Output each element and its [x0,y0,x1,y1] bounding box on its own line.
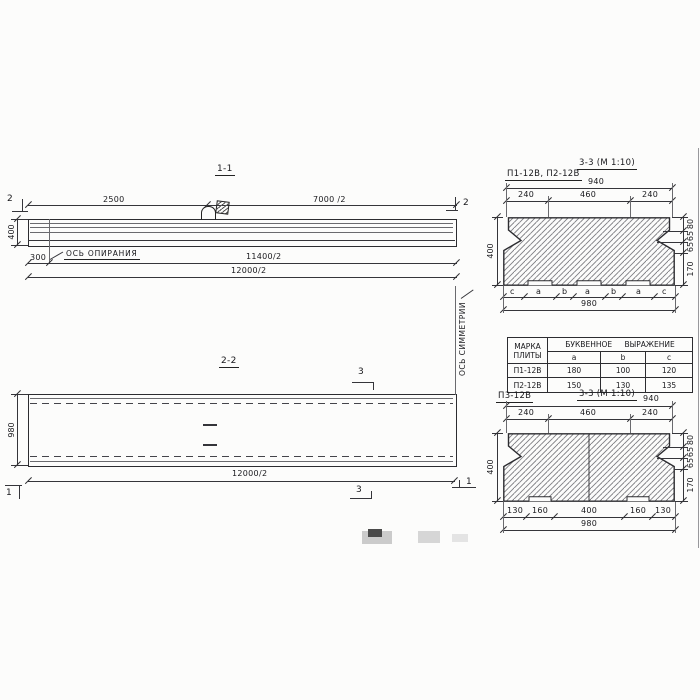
cross-bottom-label: П3-12В [496,392,533,403]
dim-line [503,297,675,298]
table-col-b: b [601,352,646,364]
dim-940: 940 [588,177,604,186]
plan-edge-line [30,398,453,399]
marks-table: МАРКА ПЛИТЫ БУКВЕННОЕ ВЫРАЖЕНИЕ a b c П1… [507,337,693,393]
sheet-frame-line [698,148,699,548]
dim-line [506,419,673,420]
section-marker-1-left: 1 [6,489,12,498]
cross-top-title: 3-3 (М 1:10) [577,159,637,170]
marker-line [459,480,460,487]
ext-line [548,196,549,217]
dim-460: 460 [580,408,596,417]
table-header-mark-line1: МАРКА [514,342,541,351]
ext-line [503,286,504,313]
center-mark [203,424,217,426]
table-header-expression: БУКВЕННОЕ ВЫРАЖЕНИЕ [548,338,692,352]
beam-layer-line [30,223,453,224]
leader-line [461,289,474,298]
dim-160: 160 [630,506,646,515]
dim-line [28,481,455,482]
dim-240: 240 [518,408,534,417]
dim-170: 170 [686,475,696,495]
beam-layer-line [28,240,455,241]
dim-130: 130 [655,506,671,515]
marker-line [22,199,23,211]
ext-line [663,231,688,232]
symmetry-axis-line [455,286,456,395]
dim-line [503,530,675,531]
marker-line [12,211,28,212]
seg-letter: b [562,287,567,296]
dim-line [506,201,673,202]
dim-line [506,406,673,407]
beam-layer-line [30,227,453,228]
marker-line [350,498,372,499]
loop-flag-icon [215,200,229,214]
table-col-c: c [646,352,692,364]
scan-artifact [418,531,440,543]
section-marker-2-left: 2 [7,195,13,204]
dim-170: 170 [686,259,696,279]
table-cell: 135 [646,378,692,392]
marker-line [352,382,374,383]
table-row-mark: П1-12В [508,364,548,378]
plan-edge-line [30,461,453,462]
dim-tick [451,477,458,484]
dim-12000-2: 12000/2 [232,469,267,478]
leader-line [50,252,63,260]
marker-line [452,487,476,488]
dim-300: 300 [30,253,46,262]
scan-artifact [368,529,382,537]
dim-11400-2: 11400/2 [246,252,281,261]
dim-400-left: 400 [7,222,17,242]
marker-line [19,485,20,499]
seg-letter: a [585,287,590,296]
cross-section-p1-p2-body [503,217,675,286]
dim-400-left: 400 [486,457,496,477]
symmetry-axis-label: ОСЬ СИММЕТРИИ [458,304,468,376]
dim-tick [453,201,460,208]
dim-line [503,310,675,311]
seg-letter: a [536,287,541,296]
plan-hidden-line [30,403,453,404]
dim-400-left: 400 [486,241,496,261]
dim-65: 65 [686,237,696,257]
table-row-mark: П2-12В [508,378,548,392]
seg-letter: c [662,287,667,296]
dim-line [17,394,18,466]
marker-line [446,210,458,211]
cross-top-label: П1-12В, П2-12В [505,170,582,181]
dim-240: 240 [518,190,534,199]
bearing-axis-line [49,219,50,263]
dim-940: 940 [643,394,659,403]
marker-line [373,382,374,390]
beam-layer-line [30,232,453,233]
section-marker-3-top: 3 [358,368,364,377]
ext-line [630,196,631,217]
dim-7000-2: 7000 /2 [313,195,346,204]
seg-letter: c [510,287,515,296]
dim-2500: 2500 [103,195,125,204]
ext-line [675,286,676,313]
drawing-sheet: 1-1 2500 7000 /2 2 2 300 ОСЬ ОПИРАНИЯ 11… [0,0,700,700]
ext-line [672,183,673,217]
bearing-axis-label: ОСЬ ОПИРАНИЯ [64,249,140,260]
seg-letter: b [611,287,616,296]
table-header-mark-line2: ПЛИТЫ [513,351,541,360]
dim-line [28,277,457,278]
cross-bottom-title: 3-3 (М 1:10) [577,390,637,401]
ext-line [663,447,688,448]
section-marker-3-bottom: 3 [356,486,362,495]
section-marker-2-right: 2 [463,199,469,208]
dim-130: 130 [507,506,523,515]
dim-980: 980 [581,519,597,528]
ext-line [548,414,549,433]
dim-line [506,188,673,189]
dim-line [28,205,457,206]
marker-line [455,197,456,210]
dim-tick [453,259,460,266]
dim-tick [453,273,460,280]
dim-line [497,217,498,286]
ext-line [672,401,673,433]
center-mark [203,444,217,446]
dim-400: 400 [581,506,597,515]
dim-980-left: 980 [7,420,17,440]
dim-line [497,433,498,502]
scan-artifact [452,534,468,542]
ext-line [506,401,507,433]
table-cell: 180 [548,364,601,378]
table-col-a: a [548,352,601,364]
dim-460: 460 [580,190,596,199]
dim-980: 980 [581,299,597,308]
dim-65: 65 [686,453,696,473]
ext-line [506,183,507,217]
dim-160: 160 [532,506,548,515]
section-2-2-title: 2-2 [219,357,239,368]
ext-line [630,414,631,433]
dim-12000-2: 12000/2 [231,266,266,275]
section-1-1-title: 1-1 [215,165,235,176]
plan-hidden-line [30,456,453,457]
marker-line [371,491,372,498]
dim-line [28,263,457,264]
ext-line [675,502,676,533]
seg-letter: a [636,287,641,296]
section-marker-1-right: 1 [466,478,472,487]
cross-section-p3-body [503,433,675,502]
table-header-mark: МАРКА ПЛИТЫ [508,338,548,364]
lifting-loop [201,206,216,220]
dim-240: 240 [642,408,658,417]
table-cell: 120 [646,364,692,378]
ext-line [503,502,504,533]
dim-240: 240 [642,190,658,199]
table-cell: 100 [601,364,646,378]
